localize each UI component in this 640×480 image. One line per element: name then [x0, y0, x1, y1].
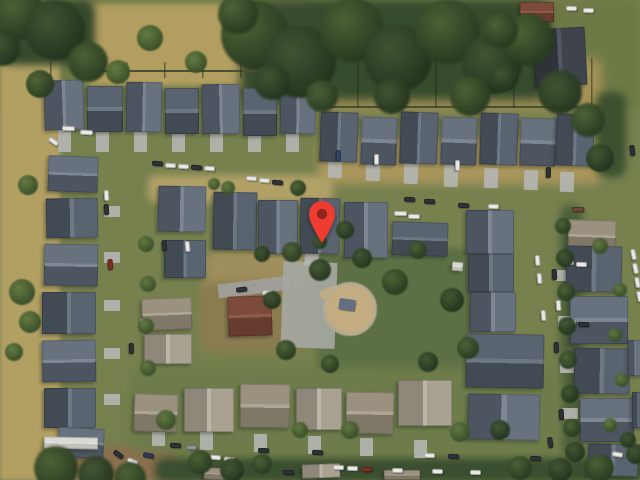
parked-car: [556, 300, 562, 311]
house-roof: [440, 116, 478, 165]
tree-canopy: [592, 238, 608, 254]
house-roof: [360, 116, 398, 165]
tree-canopy: [140, 276, 156, 292]
house-roof: [42, 292, 96, 334]
tree-canopy: [559, 351, 577, 369]
house-roof: [144, 334, 192, 364]
house-roof: [240, 384, 291, 429]
house-roof: [466, 210, 514, 254]
tree-canopy: [252, 454, 272, 474]
tree-canopy: [608, 328, 622, 342]
parked-car: [394, 211, 407, 216]
parked-car: [566, 6, 577, 12]
parked-car: [108, 259, 114, 270]
driveway-apron: [484, 168, 499, 188]
tree-canopy: [490, 420, 510, 440]
parked-car: [104, 204, 110, 215]
house-roof: [399, 111, 439, 164]
tree-canopy: [482, 12, 518, 48]
parked-car: [191, 165, 202, 171]
parked-car: [572, 207, 584, 212]
tree-canopy: [138, 236, 154, 252]
tree-canopy: [556, 249, 574, 267]
house-roof: [468, 254, 514, 292]
driveway-apron: [58, 128, 71, 152]
tree-canopy: [185, 51, 207, 73]
parked-car: [283, 470, 294, 475]
parked-car: [552, 269, 558, 280]
house-roof: [46, 198, 99, 239]
driveway-apron: [104, 300, 120, 311]
tree-canopy: [254, 246, 270, 262]
tree-canopy: [68, 42, 108, 82]
driveway-apron: [200, 432, 213, 450]
tree-canopy: [221, 181, 235, 195]
parked-car: [186, 445, 197, 451]
parked-car: [455, 160, 460, 171]
tree-canopy: [341, 421, 359, 439]
tree-canopy: [382, 269, 408, 295]
parked-car: [104, 190, 110, 201]
parked-car: [204, 166, 215, 172]
tree-canopy: [290, 180, 306, 196]
play-equipment: [338, 298, 355, 311]
parked-car: [185, 241, 191, 252]
house-roof: [87, 86, 123, 132]
parked-car: [458, 203, 469, 208]
parked-car: [129, 343, 134, 354]
tree-canopy: [5, 343, 23, 361]
parked-car: [541, 310, 547, 321]
tree-canopy: [208, 178, 220, 190]
tree-canopy: [352, 248, 372, 268]
house-roof: [470, 292, 516, 332]
house-roof: [165, 88, 199, 134]
house-roof: [42, 340, 97, 383]
tree-canopy: [508, 456, 532, 480]
parked-car: [62, 126, 75, 132]
tree-canopy: [603, 418, 617, 432]
house-roof: [519, 117, 557, 166]
driveway-apron: [404, 162, 419, 184]
tree-canopy: [450, 422, 470, 442]
house-roof: [632, 392, 640, 428]
house-roof: [202, 84, 241, 135]
parked-car: [424, 453, 435, 458]
tree-canopy: [571, 103, 605, 137]
tree-canopy: [490, 64, 518, 92]
house-roof: [212, 192, 257, 251]
driveway-apron: [104, 348, 120, 359]
parked-car: [178, 164, 189, 170]
parked-car: [333, 465, 344, 470]
driveway-apron: [560, 172, 575, 192]
tree-canopy: [374, 78, 410, 114]
parked-car: [576, 262, 587, 267]
tree-canopy: [450, 76, 490, 116]
house-roof: [398, 380, 452, 426]
parked-car: [312, 450, 323, 456]
tree-canopy: [409, 241, 427, 259]
tree-canopy: [586, 454, 614, 480]
tree-canopy: [336, 221, 354, 239]
driveway-apron: [562, 408, 578, 419]
tree-canopy: [138, 318, 154, 334]
driveway-apron: [104, 394, 120, 405]
parked-car: [432, 469, 443, 474]
parked-car: [470, 470, 481, 475]
tree-canopy: [620, 432, 636, 448]
tree-canopy: [106, 60, 130, 84]
parked-car: [152, 161, 163, 167]
house-roof: [47, 155, 98, 193]
tree-canopy: [565, 442, 585, 462]
tree-canopy: [561, 385, 579, 403]
tree-canopy: [321, 355, 339, 373]
parked-car: [408, 214, 420, 219]
driveway-apron: [524, 170, 539, 190]
tree-canopy: [282, 242, 302, 262]
location-pin-icon[interactable]: [308, 200, 336, 244]
tree-canopy: [306, 80, 338, 112]
pin-hole: [317, 209, 327, 219]
house-roof: [158, 186, 207, 233]
pin-body: [309, 201, 335, 243]
satellite-map[interactable]: [0, 0, 640, 480]
tree-canopy: [309, 259, 331, 281]
parked-car: [554, 342, 560, 353]
house-roof: [479, 112, 519, 165]
parked-car: [404, 197, 415, 203]
tree-canopy: [615, 373, 629, 387]
tree-canopy: [137, 25, 163, 51]
parked-car: [530, 456, 541, 462]
parked-car: [165, 163, 176, 169]
house-roof: [628, 340, 640, 376]
tree-canopy: [254, 64, 290, 100]
tree-canopy: [440, 288, 464, 312]
parked-car: [424, 199, 435, 205]
parked-car: [259, 178, 270, 184]
tree-canopy: [18, 175, 38, 195]
driveway-apron: [360, 438, 373, 456]
tree-canopy: [188, 450, 212, 474]
parked-car: [361, 467, 372, 472]
tree-canopy: [586, 144, 614, 172]
house-roof: [452, 262, 464, 272]
parked-car: [374, 154, 379, 165]
tree-canopy: [548, 458, 572, 480]
tree-canopy: [140, 360, 156, 376]
parked-car: [336, 150, 341, 161]
tree-canopy: [555, 218, 571, 234]
parked-car: [80, 130, 93, 136]
parked-car: [488, 204, 499, 209]
tree-canopy: [26, 70, 54, 98]
parked-car: [246, 176, 257, 182]
tree-canopy: [263, 291, 281, 309]
parked-car: [448, 454, 459, 459]
parked-car: [583, 8, 594, 14]
parked-car: [578, 322, 589, 327]
tree-canopy: [276, 340, 296, 360]
house-roof: [126, 82, 163, 133]
tree-canopy: [418, 352, 438, 372]
house-roof: [574, 348, 631, 395]
tree-canopy: [563, 419, 581, 437]
tree-canopy: [19, 311, 41, 333]
tree-canopy: [292, 422, 308, 438]
parked-car: [162, 240, 168, 251]
tree-canopy: [220, 458, 244, 480]
house-roof: [184, 388, 234, 432]
parked-car: [392, 468, 403, 473]
tree-canopy: [156, 410, 176, 430]
house-roof: [44, 388, 96, 428]
parked-car: [347, 466, 358, 471]
tree-canopy: [558, 317, 576, 335]
house-roof: [44, 244, 99, 287]
parked-car: [258, 448, 269, 454]
parked-car: [559, 409, 565, 420]
parked-car: [535, 255, 541, 266]
tree-canopy: [557, 283, 575, 301]
tree-canopy: [613, 283, 627, 297]
tree-canopy: [457, 337, 479, 359]
parked-car: [537, 273, 543, 284]
tree-canopy: [9, 279, 35, 305]
parked-car: [272, 180, 283, 186]
parked-car: [170, 443, 181, 449]
parked-car: [546, 167, 551, 178]
